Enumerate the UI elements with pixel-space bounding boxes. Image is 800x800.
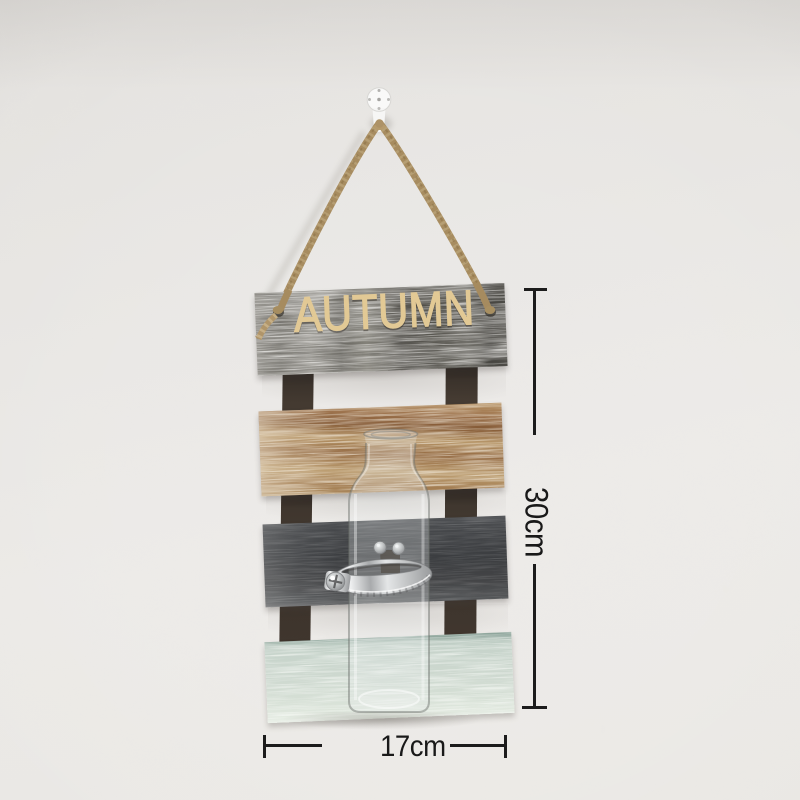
svg-text:AUTUMN: AUTUMN xyxy=(293,280,476,342)
